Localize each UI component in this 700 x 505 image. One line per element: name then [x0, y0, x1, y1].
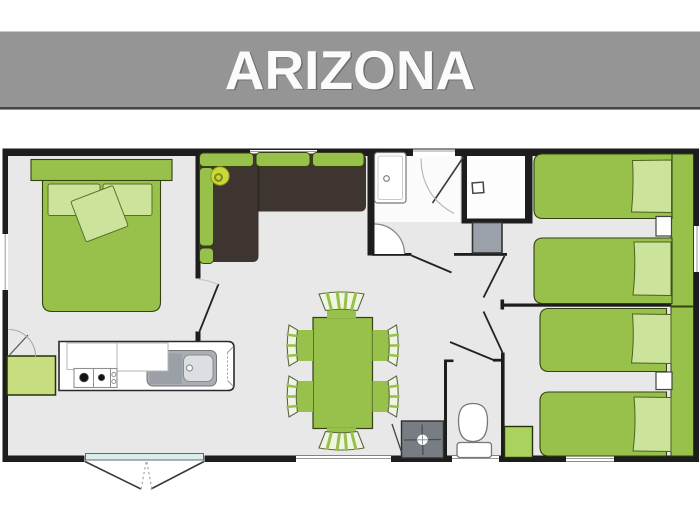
- svg-text:ARIZONA: ARIZONA: [225, 39, 476, 101]
